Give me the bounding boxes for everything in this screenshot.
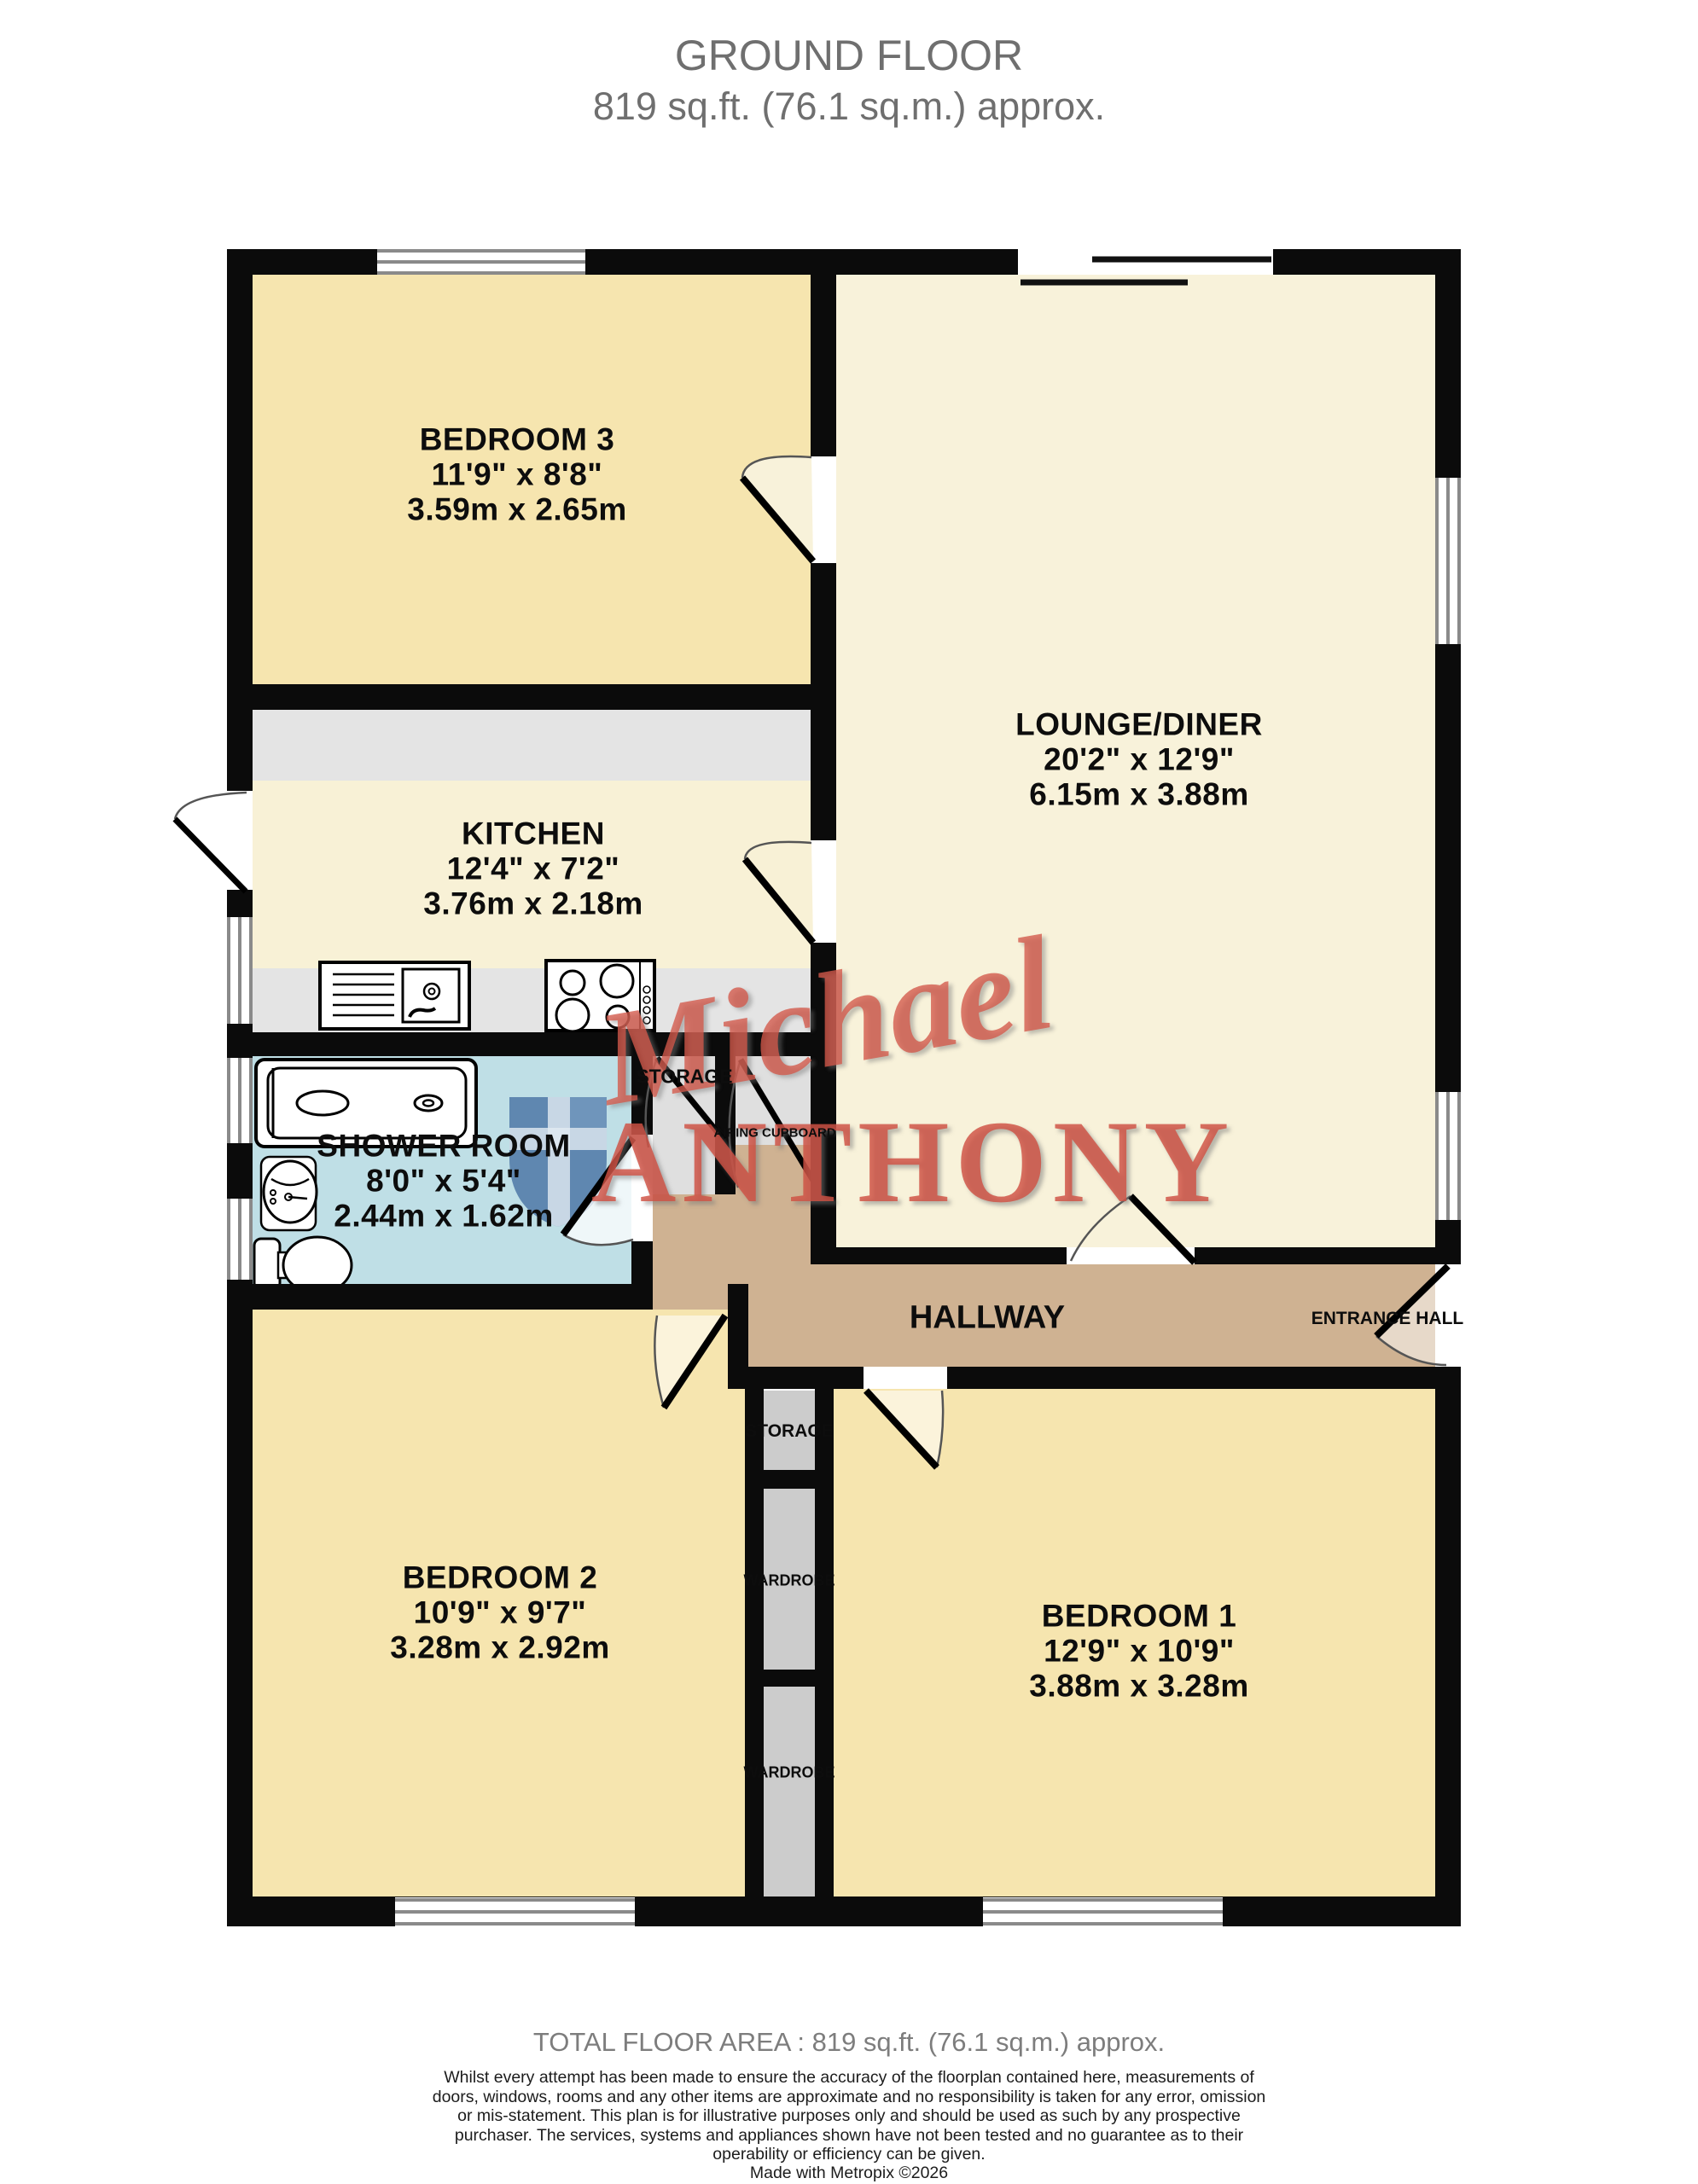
window-lounge-right-2 [1435,1092,1461,1220]
room-dim-metric: 3.88m x 3.28m [1029,1669,1248,1704]
room-dim-imperial: 12'4" x 7'2" [423,851,643,886]
wall-column-left [745,1389,764,1926]
label-wardrobe-2: WARDROBE [744,1764,835,1782]
disclaimer-text: Whilst every attempt has been made to en… [429,2068,1270,2164]
wardrobe2-floor [764,1687,815,1896]
page-subtitle: 819 sq.ft. (76.1 sq.m.) approx. [0,82,1698,131]
room-name: BEDROOM 2 [390,1560,609,1595]
disclaimer: Whilst every attempt has been made to en… [0,2068,1698,2164]
wall-divider-a [811,249,836,456]
room-dim-metric: 6.15m x 3.88m [1015,777,1263,812]
window-bedroom2-bottom [395,1897,635,1926]
plan-header: GROUND FLOOR 819 sq.ft. (76.1 sq.m.) app… [0,29,1698,131]
wall-shower-right-b [631,1241,653,1288]
wall-divider-b [811,563,836,840]
basin-icon [261,1157,317,1230]
wall-bed3-kitchen [227,684,811,710]
label-storage-lower: STORAGE [745,1421,833,1442]
window-kitchen-left [227,917,253,1024]
room-dim-imperial: 11'9" x 8'8" [407,457,626,492]
room-label-hallway: HALLWAY [910,1300,1065,1337]
room-name: LOUNGE/DINER [1015,707,1263,742]
room-label-entrance-hall: ENTRANCE HALL [1311,1309,1464,1329]
wall-kitchen-bottom [227,1032,811,1056]
floorplan-page: GROUND FLOOR 819 sq.ft. (76.1 sq.m.) app… [0,0,1698,2184]
metropix-credit: Made with Metropix ©2026 [0,2164,1698,2183]
window-bedroom3-top [377,249,585,275]
window-shower-left-1 [227,1058,253,1143]
room-dim-imperial: 10'9" x 9'7" [390,1595,609,1630]
window-lounge-right-1 [1435,478,1461,644]
kitchen-counter-top [253,710,811,781]
page-title: GROUND FLOOR [0,29,1698,82]
hall-fill-3 [736,1145,811,1281]
label-storage-upper: STORAGE [636,1066,732,1089]
wall-divider-c [811,943,836,1264]
room-label-shower: SHOWER ROOM 8'0" x 5'4" 2.44m x 1.62m [317,1129,570,1234]
room-dim-imperial: 20'2" x 12'9" [1015,742,1263,777]
room-dim-metric: 3.59m x 2.65m [407,492,626,527]
room-name: KITCHEN [423,816,643,851]
label-airing-cupboard: AIRING CUPBOARD [713,1126,835,1141]
room-label-kitchen: KITCHEN 12'4" x 7'2" 3.76m x 2.18m [423,816,643,921]
label-wardrobe-1: WARDROBE [744,1572,835,1590]
total-floor-area: TOTAL FLOOR AREA : 819 sq.ft. (76.1 sq.m… [0,2027,1698,2058]
window-shower-left-2 [227,1199,253,1280]
wall-lounge-bottom-a [811,1247,1067,1264]
room-dim-metric: 3.76m x 2.18m [423,886,643,921]
room-name: BEDROOM 1 [1029,1599,1248,1634]
room-label-bedroom3: BEDROOM 3 11'9" x 8'8" 3.59m x 2.65m [407,422,626,527]
wall-hall-bottom-a [745,1367,864,1389]
room-label-bedroom2: BEDROOM 2 10'9" x 9'7" 3.28m x 2.92m [390,1560,609,1665]
wall-column-right [815,1389,834,1926]
room-label-bedroom1: BEDROOM 1 12'9" x 10'9" 3.88m x 3.28m [1029,1599,1248,1704]
room-dim-metric: 2.44m x 1.62m [317,1199,570,1234]
window-bedroom1-bottom [983,1897,1223,1926]
room-name: SHOWER ROOM [317,1129,570,1164]
wall-hall-bottom-b [947,1367,1435,1389]
hob-icon [546,961,654,1031]
room-dim-imperial: 8'0" x 5'4" [317,1164,570,1199]
floorplan-drawing [0,0,1698,2184]
wall-lounge-bottom-b [1195,1247,1435,1264]
room-dim-imperial: 12'9" x 10'9" [1029,1634,1248,1669]
room-label-lounge: LOUNGE/DINER 20'2" x 12'9" 6.15m x 3.88m [1015,707,1263,812]
room-name: BEDROOM 3 [407,422,626,457]
wall-column-div1 [764,1470,815,1489]
wall-bed2-top [227,1284,653,1310]
room-dim-metric: 3.28m x 2.92m [390,1630,609,1665]
wall-column-div2 [764,1670,815,1687]
kitchen-sink-icon [320,962,469,1029]
